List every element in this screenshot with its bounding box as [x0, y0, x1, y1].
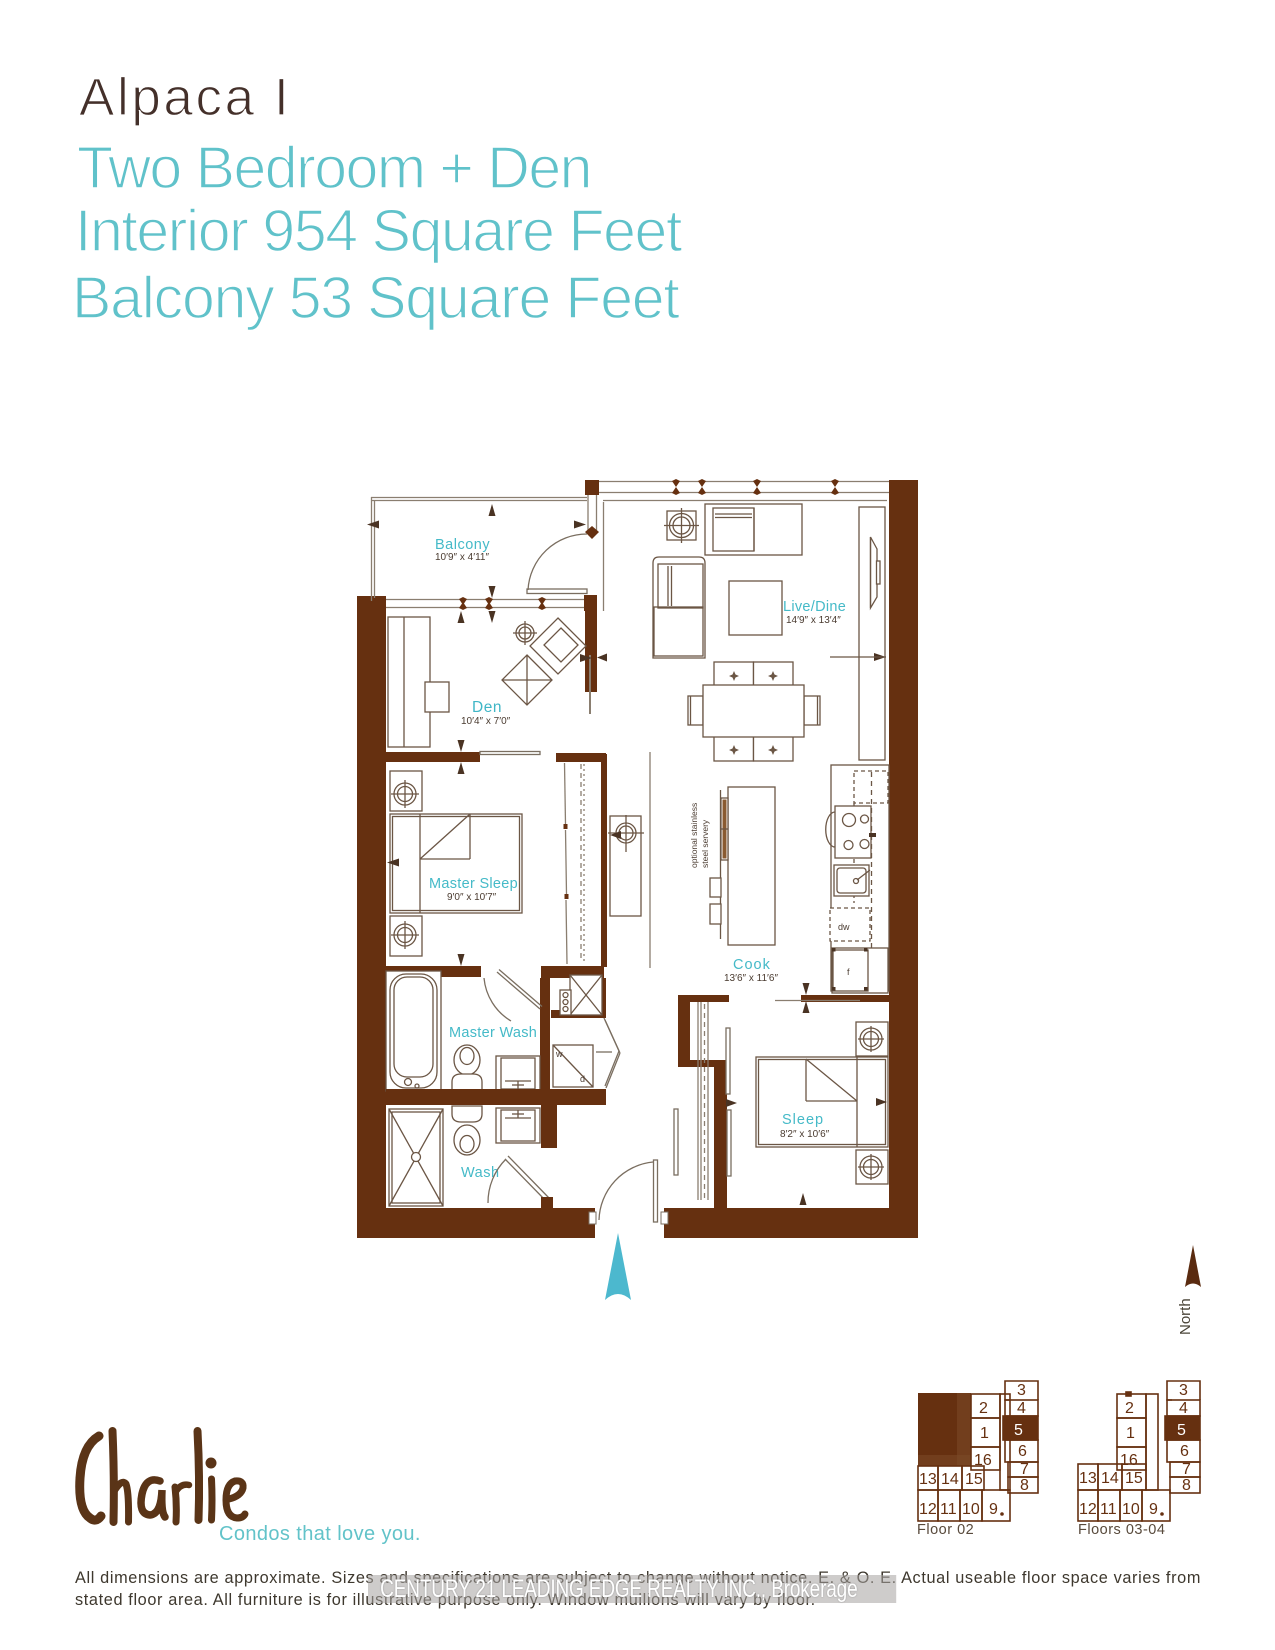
svg-text:5: 5 [1014, 1422, 1023, 1439]
svg-text:8′2″ x 10′6″: 8′2″ x 10′6″ [780, 1129, 830, 1140]
svg-text:North: North [1177, 1298, 1194, 1335]
svg-text:9: 9 [989, 1501, 998, 1518]
svg-text:Floor 02: Floor 02 [917, 1522, 974, 1538]
svg-text:16: 16 [1120, 1452, 1138, 1469]
svg-text:Den: Den [472, 699, 502, 716]
svg-text:13: 13 [1079, 1470, 1097, 1487]
svg-text:Condos that love you.: Condos that love you. [219, 1523, 421, 1545]
svg-text:11: 11 [940, 1501, 957, 1518]
svg-text:1: 1 [1126, 1425, 1135, 1442]
svg-text:dw: dw [838, 922, 850, 932]
svg-text:Cook: Cook [733, 957, 771, 973]
svg-text:15: 15 [1125, 1470, 1143, 1487]
svg-text:3: 3 [1017, 1382, 1026, 1399]
svg-text:10: 10 [962, 1501, 980, 1518]
svg-text:6: 6 [1180, 1443, 1189, 1460]
svg-text:Balcony: Balcony [435, 537, 490, 553]
svg-text:15: 15 [965, 1471, 983, 1488]
svg-text:14: 14 [1101, 1470, 1119, 1487]
svg-text:d: d [580, 1074, 585, 1084]
svg-text:Master Sleep: Master Sleep [429, 876, 518, 892]
svg-text:Master Wash: Master Wash [449, 1025, 537, 1041]
svg-text:4: 4 [1017, 1400, 1026, 1417]
svg-text:5: 5 [1177, 1422, 1186, 1439]
svg-text:optional stainless: optional stainless [689, 803, 699, 868]
svg-text:9: 9 [1149, 1501, 1158, 1518]
svg-text:7: 7 [1020, 1461, 1029, 1478]
svg-text:2: 2 [1125, 1400, 1134, 1417]
svg-text:11: 11 [1100, 1501, 1117, 1518]
svg-text:10′4″ x 7′0″: 10′4″ x 7′0″ [461, 716, 511, 727]
svg-text:12: 12 [1079, 1501, 1097, 1518]
svg-text:3: 3 [1179, 1382, 1188, 1399]
svg-text:13: 13 [919, 1471, 937, 1488]
svg-text:1: 1 [980, 1425, 989, 1442]
svg-text:w: w [555, 1049, 563, 1059]
svg-text:8: 8 [1020, 1477, 1029, 1494]
svg-text:8: 8 [1182, 1477, 1191, 1494]
svg-text:14: 14 [941, 1471, 959, 1488]
svg-text:14′9″ x 13′4″: 14′9″ x 13′4″ [786, 615, 841, 626]
svg-text:Wash: Wash [461, 1165, 500, 1181]
svg-text:13′6″ x 11′6″: 13′6″ x 11′6″ [724, 973, 778, 984]
svg-text:12: 12 [919, 1501, 937, 1518]
svg-text:2: 2 [979, 1400, 988, 1417]
svg-text:6: 6 [1018, 1443, 1027, 1460]
svg-text:10: 10 [1122, 1501, 1140, 1518]
svg-text:9′0″ x 10′7″: 9′0″ x 10′7″ [447, 892, 497, 903]
svg-text:Sleep: Sleep [782, 1112, 824, 1128]
svg-text:steel servery: steel servery [700, 819, 710, 868]
svg-text:16: 16 [974, 1452, 992, 1469]
svg-text:7: 7 [1182, 1461, 1191, 1478]
svg-text:10′9″ x 4′11″: 10′9″ x 4′11″ [435, 552, 489, 563]
svg-text:Floors 03-04: Floors 03-04 [1078, 1522, 1165, 1538]
svg-text:Live/Dine: Live/Dine [783, 599, 846, 615]
svg-text:4: 4 [1179, 1400, 1188, 1417]
